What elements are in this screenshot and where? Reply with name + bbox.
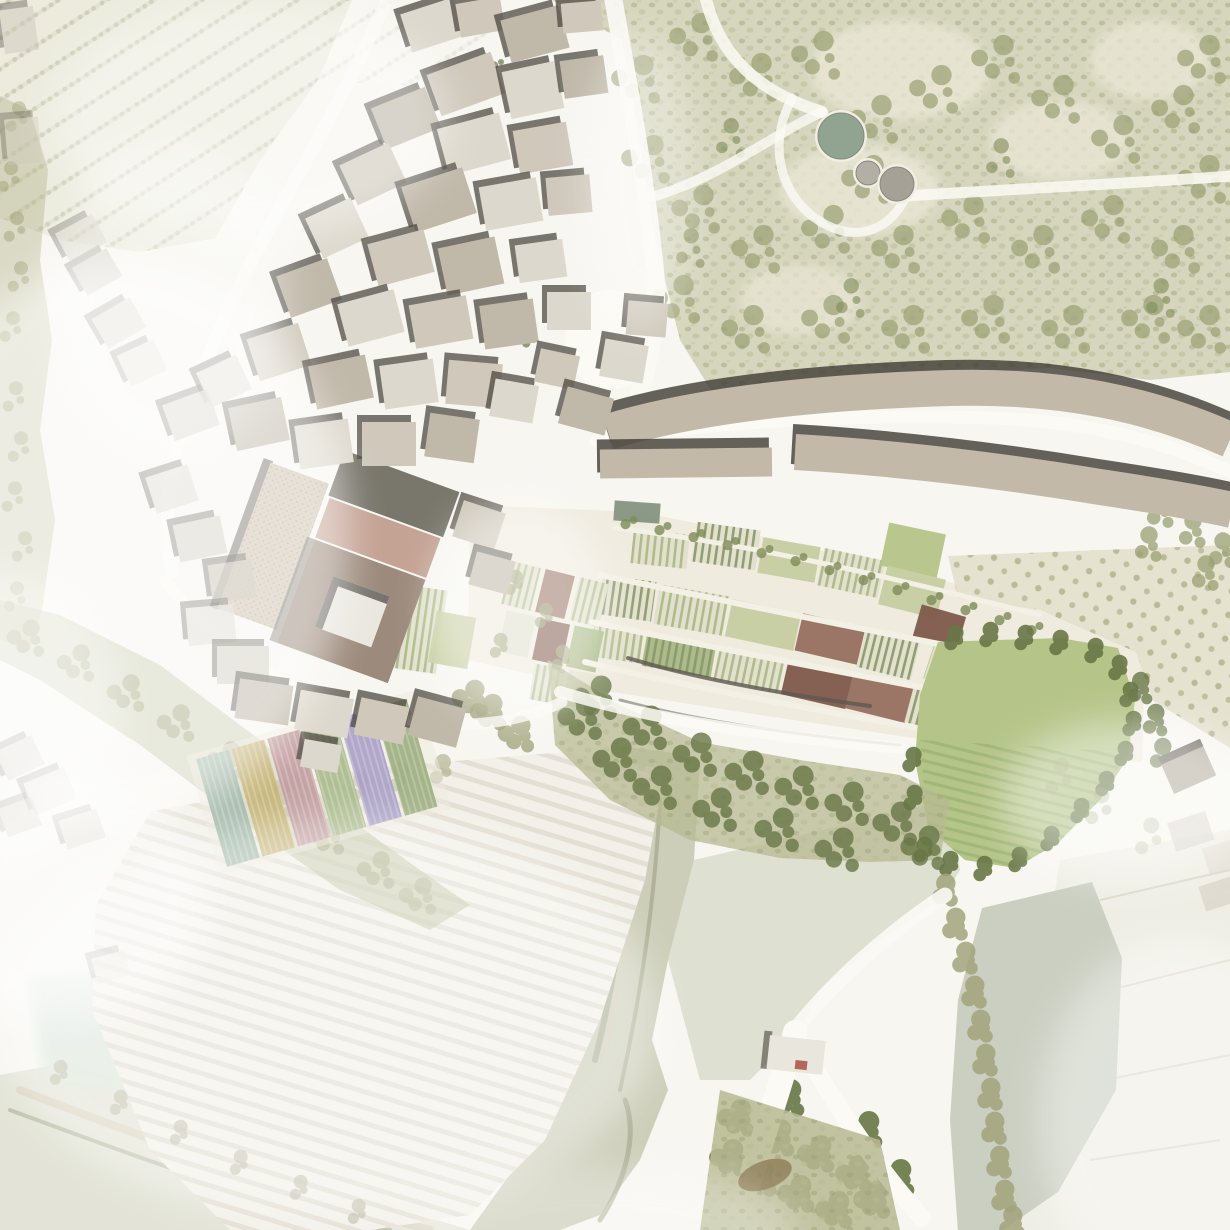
tree [10,211,24,225]
tree [960,605,970,615]
tree [825,53,835,63]
water-tank [818,113,864,159]
tree [990,1146,1009,1165]
building-roof [479,298,539,349]
building [419,405,481,463]
tree [976,1044,995,1063]
tree [1214,192,1226,204]
tree [955,928,968,941]
tree [703,35,713,45]
tree [1103,195,1123,215]
tree [672,745,690,763]
tree [498,725,515,742]
building [357,415,416,466]
tree [1045,247,1055,257]
tree [883,117,893,127]
tree [903,305,923,325]
tree [886,132,898,144]
tree [918,342,930,354]
tree [1112,655,1128,671]
building-roof [513,122,574,175]
tree [1132,672,1149,689]
tree [943,87,953,97]
building [373,352,439,411]
tree [893,225,913,245]
tree [4,231,15,242]
tree [885,253,900,268]
tree [630,516,638,524]
farmhouse-red-roof [795,1060,808,1070]
tree [1147,704,1164,721]
tree [774,778,792,796]
tree [1141,693,1152,704]
tree [766,545,774,553]
tree [758,342,770,354]
tree [722,540,732,550]
tree [974,996,987,1009]
tree [755,327,765,337]
building [402,288,473,349]
tree [858,575,868,585]
tree [1088,638,1104,654]
tree [906,747,922,763]
tree [704,764,717,777]
tree [824,794,842,812]
tree [871,95,891,115]
tree [961,310,978,327]
tree [915,327,925,337]
tree [856,309,865,318]
tree [685,297,695,307]
tree [589,727,602,740]
tree [724,763,742,781]
tree [1063,305,1083,325]
water-tank [880,167,914,201]
tree [698,529,706,537]
tree [1121,310,1138,327]
tree [688,312,700,324]
tree [1199,35,1219,55]
tree [828,68,840,80]
tree [1118,232,1130,244]
tree [724,819,737,832]
tree [970,602,978,610]
tree [1211,57,1221,67]
tree [664,797,677,810]
building [295,731,343,773]
tree [716,142,728,154]
tree [868,572,876,580]
water-tank [856,161,880,185]
tree [1113,115,1133,135]
tree [834,562,842,570]
tree [994,615,1004,625]
tree [902,582,910,590]
tree [705,207,715,217]
tree [1081,210,1098,227]
tree [11,176,19,184]
building [506,115,573,175]
tree [943,851,959,867]
building [0,110,42,166]
tree [732,537,740,545]
tree [977,856,993,872]
tree [892,585,902,595]
tree [743,305,763,325]
tree [651,766,672,787]
tree [844,278,859,293]
tree [654,525,664,535]
tree [814,840,832,858]
tree [1135,545,1149,559]
tree [907,785,923,801]
tree [706,50,718,62]
building-roof [362,422,416,466]
tree [1158,332,1170,344]
tree [17,226,25,234]
tree [790,556,800,566]
tree [724,118,739,133]
tree [909,80,926,97]
tree [1151,551,1162,562]
tree [756,782,769,795]
tree [1163,517,1174,528]
tree [895,333,910,348]
tree [753,225,773,245]
tree [669,28,686,45]
tree [1214,72,1226,84]
tree [806,797,819,810]
tree [993,35,1013,55]
tree [592,750,610,768]
tree [786,839,799,852]
tree [1188,122,1200,134]
tree [948,625,964,641]
tree [955,223,970,238]
tree [990,1098,1003,1111]
tree [856,813,869,826]
tree [721,320,738,337]
tree [1091,130,1108,147]
tree [1192,574,1206,588]
tree [1154,278,1169,293]
tree [21,276,29,284]
tree [908,262,920,274]
tree [846,859,859,872]
tree [1045,103,1060,118]
building [594,331,650,384]
tree [931,65,951,85]
tree [1011,240,1028,257]
tree [743,751,764,772]
tree [971,1010,990,1029]
tree [693,185,713,205]
tree [1036,622,1044,630]
tree [1041,320,1058,337]
tree [1155,317,1165,327]
building-roof [424,413,480,464]
building [0,0,39,55]
tree [1199,305,1219,325]
tree [872,814,890,832]
building-roof [489,378,539,423]
tree [983,622,999,638]
tree [835,317,845,327]
building-roof [561,0,603,33]
tree [692,246,700,254]
tree [1068,112,1080,124]
tree [1048,262,1060,274]
tree [611,738,632,759]
tree [1033,225,1053,245]
tree [1173,85,1193,105]
building-roof [547,292,591,330]
tree [1195,537,1206,548]
building [473,292,539,351]
tree [965,962,978,975]
tree [654,737,667,750]
tree [1025,253,1040,268]
tree [1191,63,1206,78]
tree [620,519,630,529]
tree [1173,225,1193,245]
tree [1151,240,1168,257]
tree [1185,107,1195,117]
tree [983,295,1003,315]
tree [1005,57,1015,67]
tree [833,828,854,849]
tree [735,333,750,348]
tree [813,31,833,51]
tree [1095,223,1110,238]
tree [1065,97,1075,107]
building [484,371,540,424]
building-roof [515,239,568,283]
tree [994,138,1009,153]
tree [985,63,1000,78]
tree [521,740,534,753]
tree [963,195,983,215]
tree [1018,625,1034,641]
tree [965,976,984,995]
tree [975,323,990,338]
tree [1211,327,1221,337]
tree [1055,333,1070,348]
tree [745,253,760,268]
tree [852,296,860,304]
tree [1165,113,1180,128]
tree [905,247,915,257]
tree [1053,75,1073,95]
tree [557,708,575,726]
tree [1105,143,1120,158]
tree [871,240,888,257]
building-roof [4,117,42,166]
tree [971,50,988,67]
tree [1125,137,1135,147]
tree [1012,847,1028,863]
tree [985,1112,1004,1131]
tree [815,233,830,248]
tree [1128,688,1142,702]
tree [981,1078,1000,1097]
tree [1179,531,1193,545]
building-roof [599,338,649,383]
tree [838,242,850,254]
tree [1177,50,1194,67]
tree [926,595,936,605]
tree [773,808,794,829]
tree [838,332,850,344]
tree [986,162,998,174]
tree [754,820,772,838]
tree [941,210,958,227]
tree [1197,555,1214,572]
tree [756,548,766,558]
tree [824,565,834,575]
tree [1115,217,1125,227]
tree [994,1132,1007,1145]
tree [1146,302,1158,314]
tree [881,320,898,337]
tree [815,323,830,338]
tree [805,59,820,74]
tree [691,733,712,754]
tree [793,766,814,787]
tree [1002,156,1010,164]
tree [624,769,637,782]
row-houses-roofs [600,462,772,464]
tree [1177,320,1194,337]
tree [999,1166,1012,1179]
tree [978,232,990,244]
building [509,232,568,284]
tree [1151,100,1168,117]
tree [946,908,965,927]
tree [711,788,732,809]
tree [1006,169,1015,178]
tree [956,942,975,961]
tree [683,41,698,56]
tree [1031,90,1048,107]
tree [1128,152,1140,164]
tree [731,240,748,257]
tree [708,222,720,234]
tree [995,317,1005,327]
tree [768,262,780,274]
tree [1191,183,1206,198]
site-plan [0,0,1230,1230]
tree [1135,323,1150,338]
tree [995,1180,1014,1199]
site-plan-svg [0,0,1230,1230]
tree [917,837,933,853]
tree [980,1030,993,1043]
tree [936,592,944,600]
tree [591,676,612,697]
tree [692,800,710,818]
tree [836,302,848,314]
tree [1008,72,1020,84]
tree [14,261,28,275]
tree [664,522,672,530]
tree [1003,1206,1022,1225]
tree [1078,342,1090,354]
tree [1214,342,1226,354]
tree [1004,612,1012,620]
tree [1208,580,1219,591]
tree [1166,309,1175,318]
tree [1185,247,1195,257]
tree [801,310,818,327]
building-roof [379,358,439,409]
tree [946,102,958,114]
tree [1165,253,1180,268]
tree [843,782,864,803]
tree [975,217,985,227]
tree [732,136,740,144]
tree [765,247,775,257]
tree [800,553,808,561]
tree [1075,327,1085,337]
tree [1053,630,1069,646]
tree [696,259,705,268]
building-roof [0,6,39,54]
tree [688,532,698,542]
tree [622,718,640,736]
tree [498,59,504,65]
tree [923,93,938,108]
tree [985,1064,998,1077]
building [542,285,591,330]
tree [998,332,1010,344]
building [472,170,543,231]
tree [1162,296,1170,304]
tree [1140,526,1157,543]
tree [632,778,650,796]
tree [1188,262,1200,274]
tree [791,46,808,63]
tree [1191,333,1206,348]
